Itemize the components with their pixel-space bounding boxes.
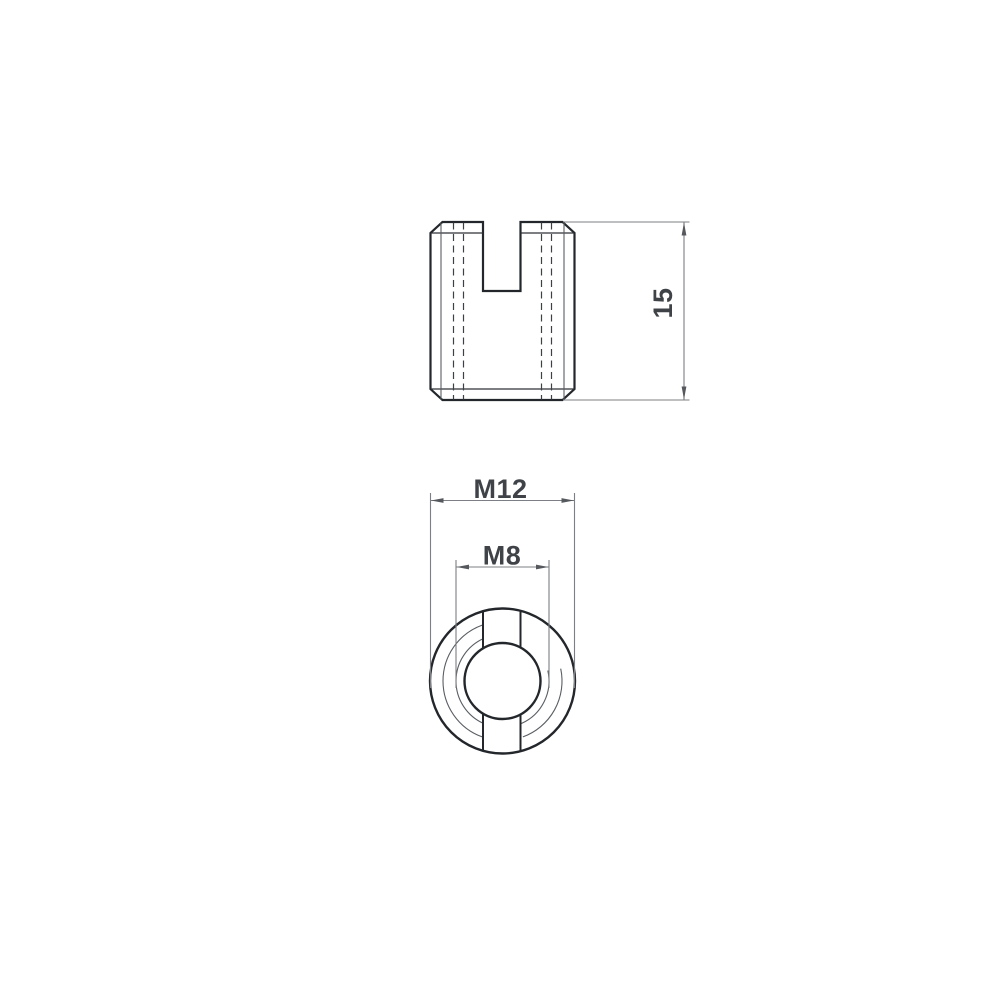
dimension-outer-thread: M12	[431, 474, 575, 688]
inner-bore-circle	[465, 643, 541, 719]
dimension-height: 15	[563, 222, 690, 400]
outer-diameter-circle	[430, 609, 575, 754]
side-view	[431, 222, 575, 400]
dimension-label-outer: M12	[473, 474, 527, 504]
dimension-arrow-right	[536, 565, 549, 570]
thread-arc-outer	[523, 669, 562, 737]
drawing-sheet: 15 M12 M8	[0, 0, 1000, 1000]
dimension-inner-thread: M8	[456, 541, 549, 689]
dimension-arrow-down	[682, 387, 687, 400]
dimension-arrow-left	[457, 565, 470, 570]
dimension-arrow-left	[431, 498, 444, 503]
technical-drawing-canvas: 15 M12 M8	[0, 0, 1000, 1000]
dimension-label-height: 15	[648, 287, 678, 318]
dimension-arrow-up	[682, 223, 687, 236]
dimension-label-inner: M8	[483, 541, 522, 571]
thread-arc-inner	[521, 671, 549, 724]
end-view	[430, 609, 575, 754]
side-view-outline	[431, 222, 575, 400]
dimension-arrow-right	[562, 498, 575, 503]
